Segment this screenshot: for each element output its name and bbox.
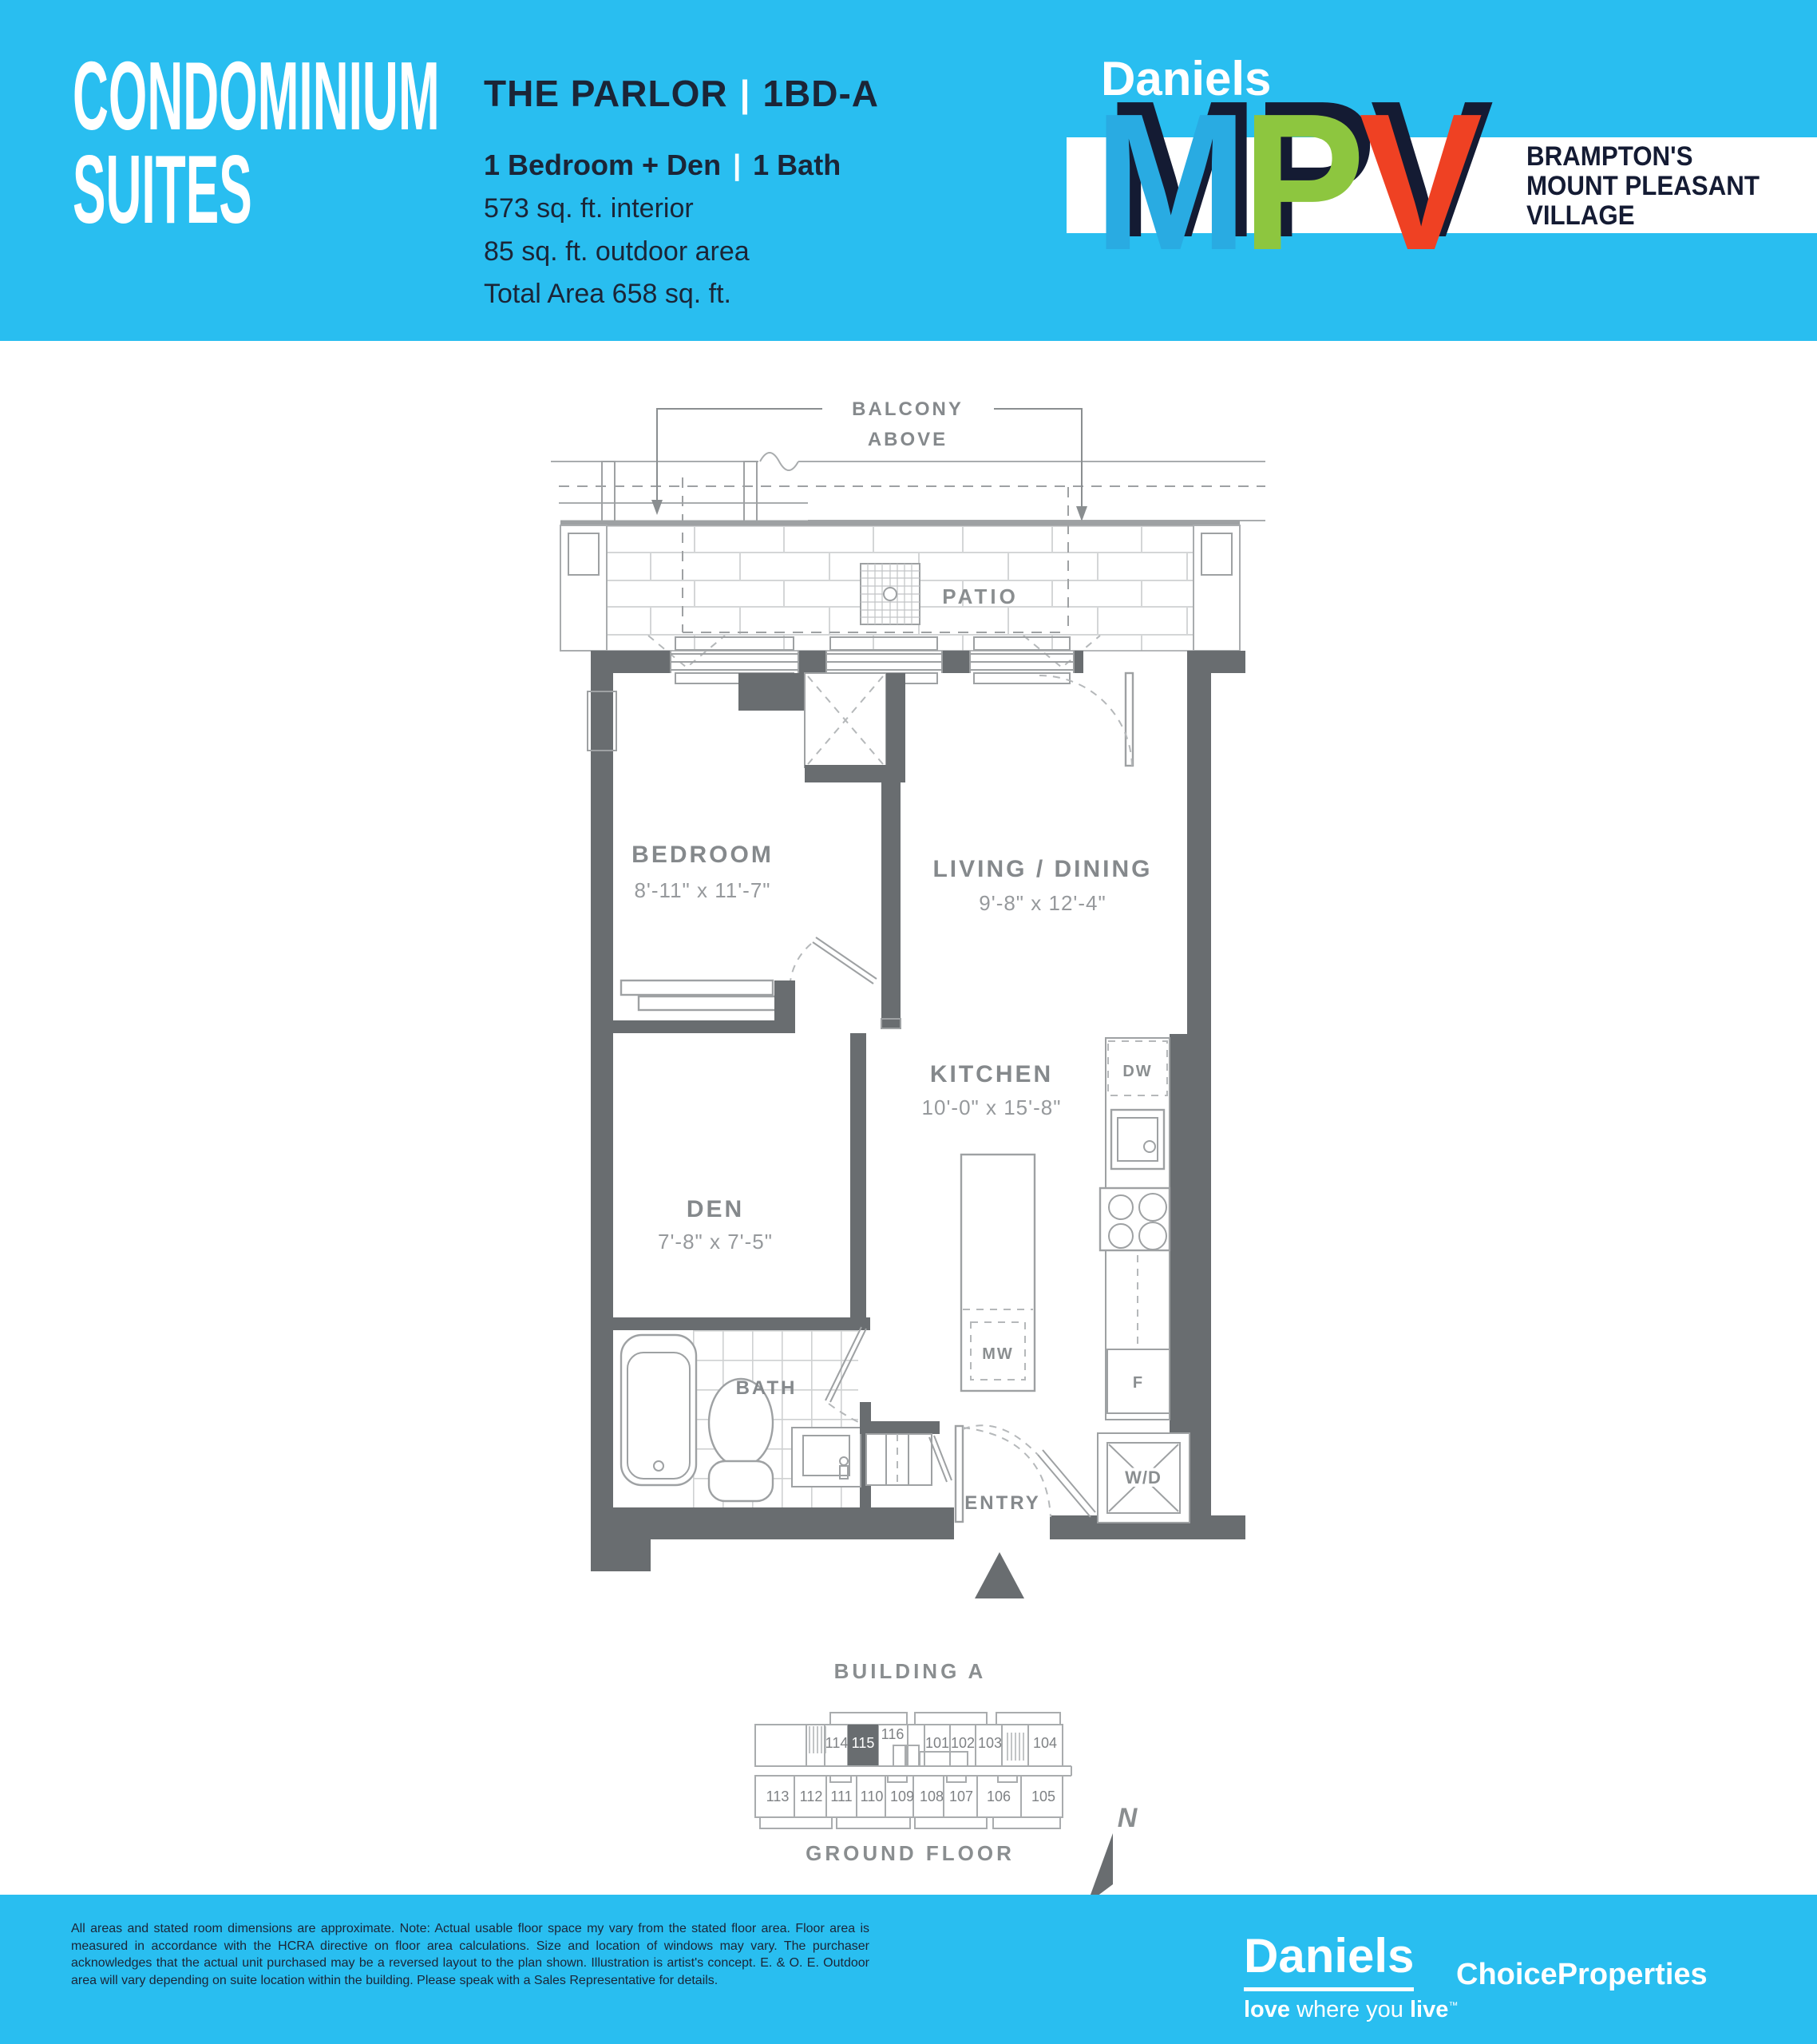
bedroom-door <box>790 937 877 1003</box>
patio-door <box>1039 673 1133 768</box>
daniels-footer-logo: Daniels love where you live™ <box>1244 1932 1458 2023</box>
kitchen-dims: 10'-0" x 15'-8" <box>922 1095 1062 1119</box>
unit-114: 114 <box>825 1735 849 1751</box>
keyplan: BUILDING A <box>755 1659 1138 1903</box>
divider-wall <box>881 782 901 1028</box>
unit-106: 106 <box>987 1788 1011 1804</box>
suite-features-row: 1 Bedroom + Den|1 Bath <box>484 149 841 182</box>
feature-bath: 1 Bath <box>753 149 841 181</box>
unit-112: 112 <box>800 1788 823 1804</box>
mw-label: MW <box>982 1345 1014 1363</box>
north-arrow: N <box>1087 1803 1138 1903</box>
tagline-line2: MOUNT PLEASANT <box>1526 172 1760 201</box>
mpv-letter-v: V <box>1360 73 1477 291</box>
choice-properties-logo: ChoiceProperties <box>1456 1958 1708 1992</box>
keyplan-title: BUILDING A <box>834 1659 987 1683</box>
cooktop <box>1100 1188 1170 1250</box>
mpv-letter-m: M <box>1094 73 1242 291</box>
floorplan-sheet: BALCONY ABOVE PATIO <box>0 0 1817 2044</box>
mpv-logo: MPV <box>1094 85 1477 279</box>
bathtub <box>621 1335 696 1485</box>
tagline-line3: VILLAGE <box>1526 201 1760 231</box>
entry-arrow <box>975 1552 1024 1598</box>
north-label: N <box>1118 1803 1138 1833</box>
page-title-line1: CONDOMINIUM <box>73 50 440 143</box>
page-title-line2: SUITES <box>73 143 440 236</box>
daniels-wordmark: Daniels <box>1244 1932 1414 1991</box>
unit-101: 101 <box>925 1735 949 1751</box>
bath-label: BATH <box>736 1377 798 1399</box>
unit-107: 107 <box>949 1788 973 1804</box>
separator: | <box>721 149 753 181</box>
unit-103: 103 <box>978 1735 1002 1751</box>
den-label: DEN <box>687 1196 744 1222</box>
total-area: Total Area 658 sq. ft. <box>484 279 731 310</box>
shaft-closet <box>738 673 905 782</box>
vanity-sink <box>792 1428 861 1487</box>
tagline-live: live <box>1410 1997 1448 2022</box>
outdoor-area: 85 sq. ft. outdoor area <box>484 236 750 267</box>
header-band: CONDOMINIUM SUITES THE PARLOR|1BD-A 1 Be… <box>0 0 1817 341</box>
plan-code: 1BD-A <box>762 73 879 114</box>
living-label: LIVING / DINING <box>932 856 1152 882</box>
patio-drain <box>861 564 920 624</box>
unit-113: 113 <box>766 1788 790 1804</box>
living-dims: 9'-8" x 12'-4" <box>979 891 1106 915</box>
fridge-label: F <box>1133 1374 1144 1392</box>
mpv-tagline: BRAMPTON'S MOUNT PLEASANT VILLAGE <box>1526 142 1760 231</box>
unit-110: 110 <box>861 1788 884 1804</box>
keyplan-floor: GROUND FLOOR <box>806 1841 1015 1865</box>
tagline-line1: BRAMPTON'S <box>1526 142 1760 172</box>
entry-label: ENTRY <box>964 1492 1040 1514</box>
separator: | <box>728 73 763 114</box>
patio-area: PATIO <box>560 477 1240 667</box>
unit-115: 115 <box>852 1735 875 1751</box>
unit-105: 105 <box>1031 1788 1055 1804</box>
bedroom-label: BEDROOM <box>631 842 774 868</box>
tagline-love: love <box>1244 1997 1290 2022</box>
trademark-symbol: ™ <box>1448 1999 1458 2010</box>
balcony-label-line2: ABOVE <box>868 429 948 450</box>
kitchen-label: KITCHEN <box>930 1061 1053 1087</box>
kitchen-counter: DW F <box>1100 1038 1170 1420</box>
feature-bedroom-den: 1 Bedroom + Den <box>484 149 721 181</box>
unit-116: 116 <box>881 1726 905 1742</box>
bedroom-closet <box>591 980 866 1317</box>
kitchen-island: MW <box>961 1155 1035 1391</box>
washer-dryer: W/D <box>1038 1433 1190 1523</box>
mpv-letter-p: P <box>1242 73 1360 291</box>
unit-111: 111 <box>830 1788 852 1804</box>
plan-name: THE PARLOR <box>484 73 728 114</box>
page-title: CONDOMINIUM SUITES <box>73 50 440 236</box>
upper-structure-lines <box>551 450 1265 529</box>
daniels-tagline: love where you live™ <box>1244 1997 1458 2023</box>
unit-102: 102 <box>951 1735 975 1751</box>
tagline-where-you: where you <box>1290 1997 1410 2022</box>
den-dims: 7'-8" x 7'-5" <box>658 1230 773 1254</box>
dw-label: DW <box>1122 1063 1152 1080</box>
interior-area: 573 sq. ft. interior <box>484 193 694 224</box>
bedroom-dims: 8'-11" x 11'-7" <box>634 878 770 902</box>
balcony-label-line1: BALCONY <box>852 398 964 420</box>
unit-104: 104 <box>1033 1735 1057 1751</box>
bathroom: BATH <box>591 1317 871 1507</box>
patio-label: PATIO <box>942 584 1019 608</box>
wd-label: W/D <box>1125 1468 1162 1487</box>
suite-name-row: THE PARLOR|1BD-A <box>484 72 879 115</box>
unit-108: 108 <box>920 1788 944 1804</box>
disclaimer-text: All areas and stated room dimensions are… <box>71 1920 869 1989</box>
unit-109: 109 <box>890 1788 914 1804</box>
